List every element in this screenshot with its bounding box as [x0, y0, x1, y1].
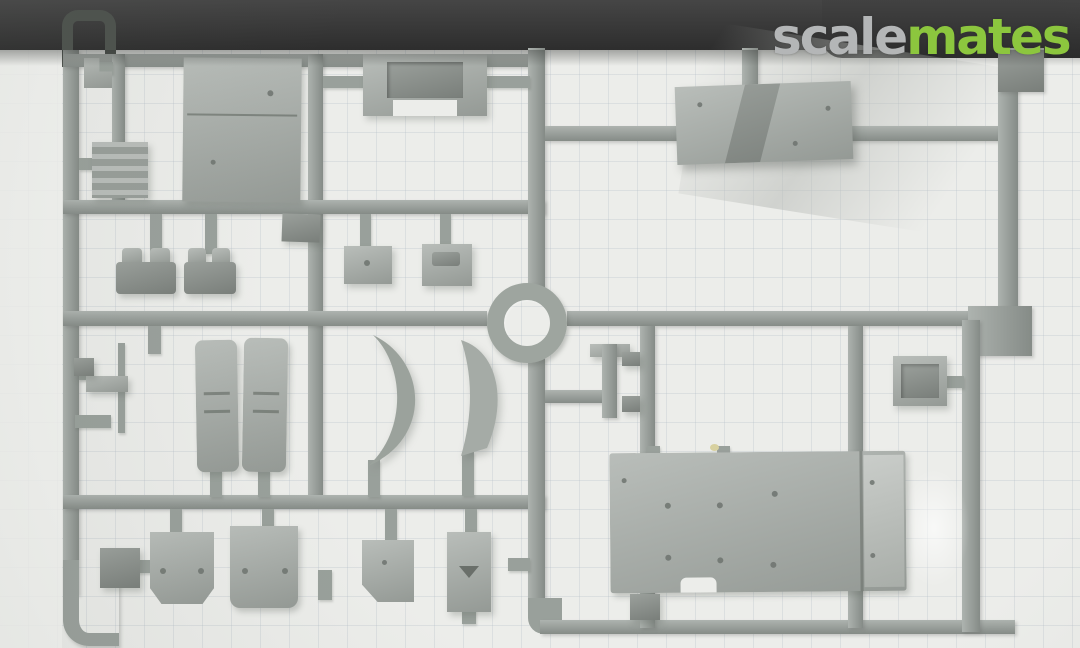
gate-stub	[508, 558, 530, 571]
runner-branch-right-middle	[545, 390, 605, 403]
part-cab-roof-panel	[182, 57, 302, 202]
part-mount-box	[362, 540, 414, 602]
part-hatch-box	[893, 356, 947, 406]
gate-stub	[360, 214, 371, 250]
sprue-photo: scalemates	[0, 0, 1080, 648]
part-wheel-drum-pair	[184, 248, 236, 296]
mat-left-highlight	[0, 46, 62, 648]
part-louvered-box	[92, 142, 148, 198]
gate-stub	[210, 470, 222, 497]
runner-horizontal-3	[63, 495, 545, 509]
part-hook-fitting	[622, 396, 640, 412]
part-wheel-drum-pair	[116, 248, 176, 296]
part-track-panel	[242, 338, 288, 473]
gate-stub	[487, 76, 530, 88]
runner-vertical-310	[308, 54, 323, 497]
part-small-fitting	[630, 594, 660, 620]
watermark-text-mates: mates	[906, 8, 1069, 66]
scalemates-watermark: scalemates	[772, 12, 1070, 62]
part-small-fitting	[344, 246, 392, 284]
runner-bottom-right	[540, 620, 1015, 634]
gate-stub	[385, 509, 397, 542]
watermark-text-scale: scale	[772, 8, 906, 66]
part-gearbox-housing	[230, 526, 298, 608]
runner-vertical-645	[640, 326, 655, 456]
gate-stub	[75, 415, 111, 428]
dust-fleck	[710, 444, 719, 451]
part-small-fitting	[422, 244, 472, 286]
gate-stub	[323, 76, 367, 88]
part-hull-floor-plate	[609, 451, 906, 594]
runner-vertical-852	[848, 326, 863, 456]
part-small-dark-bracket	[282, 213, 321, 242]
part-gearbox-housing	[150, 532, 214, 604]
runner-horizontal-2-left	[63, 311, 487, 326]
part-vertical-fitting	[447, 532, 491, 612]
part-small-block	[74, 358, 94, 376]
part-small-bar	[86, 376, 128, 392]
gate-stub	[170, 509, 182, 535]
chassis-highlight	[898, 468, 970, 588]
runner-center-vertical-lower	[528, 358, 545, 610]
gate-stub	[148, 326, 161, 354]
part-small-block	[100, 548, 140, 588]
runner-horizontal-2-right	[567, 311, 1013, 326]
part-crescent-fender	[348, 333, 448, 469]
part-bracket-arm	[602, 344, 617, 418]
runner-right-vertical-lower	[962, 320, 980, 632]
runner-vertical-852-lower	[848, 586, 863, 628]
gate-stub	[318, 570, 332, 600]
runner-center-vertical-upper	[528, 48, 545, 288]
part-hook-fitting	[622, 352, 640, 366]
gate-stub	[258, 470, 270, 497]
runner-horizontal-1	[63, 200, 545, 214]
part-angled-hull-plate	[675, 81, 854, 165]
part-curved-panel	[453, 340, 517, 460]
part-track-panel	[195, 340, 239, 473]
